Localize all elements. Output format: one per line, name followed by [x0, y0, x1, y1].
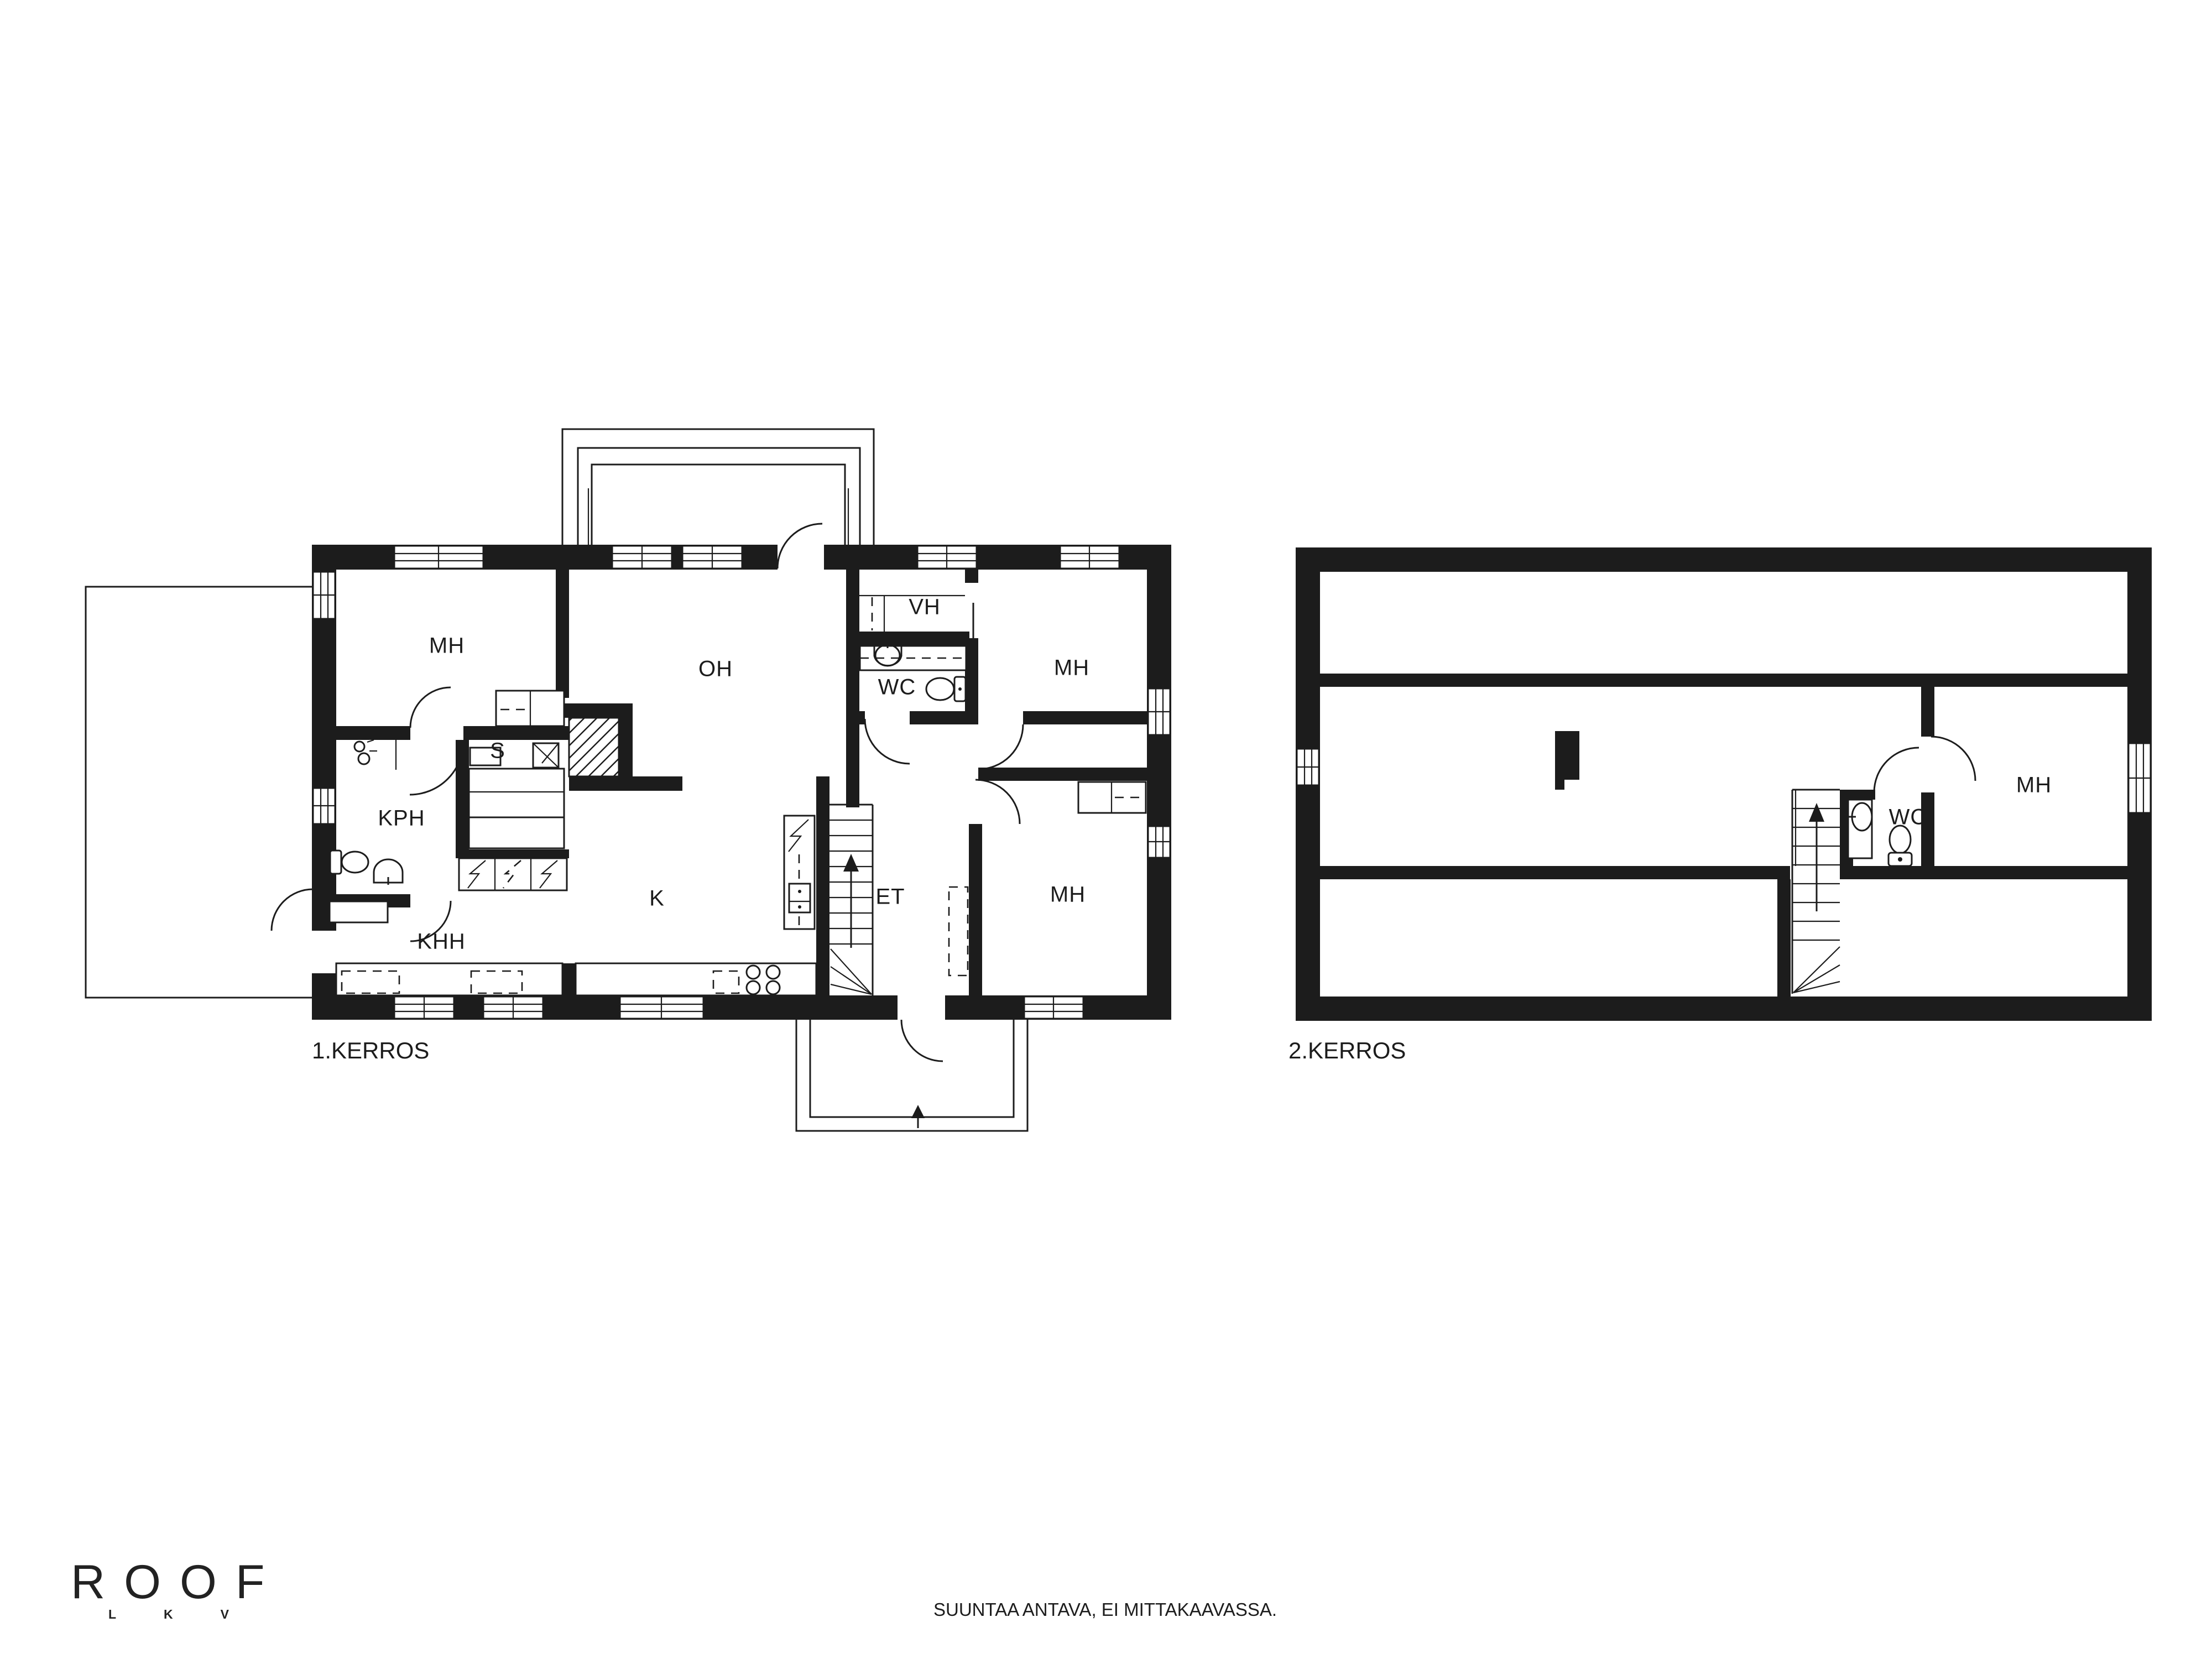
floor2-interior-walls: [1320, 674, 2127, 997]
sauna-interior: [469, 743, 564, 848]
entry-arrow: [911, 1105, 925, 1118]
floor1-plan: [86, 429, 1171, 1131]
room-label-mh1: MH: [429, 634, 465, 659]
stairs2-up-arrow: [1809, 803, 1824, 822]
stairs1-up-arrow: [843, 854, 859, 872]
bottom-porch-outline: [796, 1020, 1027, 1131]
room-label-mh3: MH: [1054, 656, 1089, 681]
floorplan-drawing: [0, 0, 2212, 1659]
floorplan-page: MH OH VH WC MH KPH S KHH K ET MH MH WC 1…: [0, 0, 2212, 1659]
logo-sub-text: LKV: [108, 1607, 276, 1622]
fireplace: [556, 703, 682, 791]
room-label-wc1: WC: [878, 675, 916, 700]
kitchen-tall-unit: [784, 816, 815, 929]
room-label-s: S: [490, 739, 505, 764]
floor1-title: 1.KERROS: [312, 1037, 429, 1064]
floor2-doors: [1874, 737, 1975, 792]
disclaimer-text: SUUNTAA ANTAVA, EI MITTAKAAVASSA.: [933, 1599, 1277, 1620]
room-label-kph: KPH: [378, 806, 425, 831]
floor2-title: 2.KERROS: [1288, 1037, 1406, 1064]
logo-text: ROOF: [71, 1555, 283, 1610]
room-label-wc2: WC: [1889, 805, 1927, 830]
top-porch-outline: [562, 429, 874, 545]
room-label-mh4: MH: [2016, 773, 2052, 798]
room-label-oh: OH: [698, 657, 733, 682]
mh1-wardrobe: [496, 691, 564, 726]
room-label-k: K: [649, 886, 665, 911]
room-label-khh: KHH: [417, 930, 465, 954]
chimney-floor2: [1555, 731, 1579, 790]
room-label-mh2: MH: [1050, 883, 1086, 907]
room-label-vh: VH: [909, 595, 941, 620]
stairs-floor2: [1792, 790, 1840, 994]
terrace-outline: [86, 587, 312, 998]
shower-glass-panels: [459, 858, 567, 890]
stairs-floor1: [830, 805, 873, 995]
room-label-et: ET: [875, 885, 905, 910]
